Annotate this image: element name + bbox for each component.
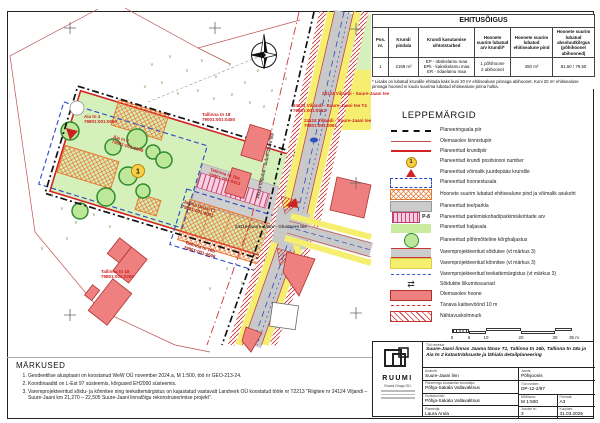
tree-swatch xyxy=(404,233,419,248)
bus-stop-marker xyxy=(310,138,318,143)
format-cell: Formaat:A3 xyxy=(557,395,596,406)
svg-text:∨: ∨ xyxy=(65,236,69,242)
table-row: 1 2169 m² EP - üksikelamu maa EPk - kaks… xyxy=(373,57,595,76)
legend-panel: LEPPEMÄRGID Planeeringuala piir Olemasol… xyxy=(388,110,592,322)
note-item: Varemprojekteeritud sõidu- ja kõnnitee n… xyxy=(28,389,368,403)
scale-segment xyxy=(521,331,555,334)
svg-text:∨: ∨ xyxy=(240,280,244,286)
project-title-cell: Töö nimetus: Suure-Jaani linnas Jaama tä… xyxy=(423,342,595,368)
legend-item: Planeeringuala piir xyxy=(388,126,592,136)
legend-item: Varemprojekteeritud teekattemärgistus (v… xyxy=(388,269,592,279)
svg-text:∨: ∨ xyxy=(40,246,44,252)
ruumi-logo-icon xyxy=(383,346,413,374)
svg-text:∨: ∨ xyxy=(243,80,247,86)
road-name-label: 24116 Suure-Jaani - Olustvere tee xyxy=(235,224,307,229)
company-name: Ruumi Grupp OÜ xyxy=(384,384,410,388)
parcel-label: Tallinna tn 18 79801:001:0280 xyxy=(101,269,134,279)
sheet-date-cell: Joonise nr:3 Kuupäev:31.03.2025 xyxy=(519,407,595,418)
planning-boundary-swatch xyxy=(391,130,431,132)
scale-segment xyxy=(555,328,572,331)
legend-item: ⇄Sõidukite liikumissuunad xyxy=(388,280,592,290)
position-number-swatch: 1 xyxy=(406,157,417,168)
col-header: Hoonete suurim lubatud arv krundil* xyxy=(475,28,511,57)
company-logo: RUUMI Ruumi Grupp OÜ xyxy=(373,342,423,416)
svg-text:∨: ∨ xyxy=(160,80,164,86)
date-cell: Kuupäev:31.03.2025 xyxy=(557,407,596,418)
col-header: Pos. nr. xyxy=(373,28,389,57)
prev-sidewalk-swatch xyxy=(390,258,432,269)
notes-panel: MÄRKUSED Geodeetilise alusplaani on koos… xyxy=(16,361,368,403)
road-parking-swatch xyxy=(390,201,432,212)
parcel-label: Tallinna tn 18 79001:001:0450 xyxy=(202,112,235,122)
hoonestusala-swatch xyxy=(390,178,432,188)
svg-text:∨: ∨ xyxy=(284,76,288,82)
legend-item: Planeeritud põhimõtteline kõrghaljastus xyxy=(388,233,592,248)
cell-height: 81,50 / 79,50 xyxy=(553,57,595,76)
cell-pos: 1 xyxy=(373,57,389,76)
legend-item: Nähtavuskolmnurk xyxy=(388,311,592,322)
svg-text:∨: ∨ xyxy=(225,266,229,272)
green-area-swatch xyxy=(391,224,431,233)
access-swatch xyxy=(406,169,416,177)
svg-text:∨: ∨ xyxy=(74,220,78,226)
svg-text:∨: ∨ xyxy=(228,62,232,68)
prev-marking-swatch xyxy=(391,274,431,275)
logo-text: RUUMI xyxy=(382,375,412,382)
building-rights-table: EHITUSÕIGUS Pos. nr. Krundi pindala Krun… xyxy=(372,14,595,77)
legend-item: Varemprojekteeritud sõidutee (vt märkus … xyxy=(388,248,592,258)
cell-area: 2169 m² xyxy=(389,57,419,76)
legend-item: Tänava kaitsevöönd 10 m xyxy=(388,301,592,311)
svg-text:∨: ∨ xyxy=(50,192,54,198)
svg-text:∨: ∨ xyxy=(256,68,260,74)
plot-boundary-swatch xyxy=(391,150,431,152)
company-info-line xyxy=(381,394,415,396)
legend-item: Planeeritud võimalik juurdepääs krundile xyxy=(388,168,592,178)
scale-segment xyxy=(452,329,469,333)
legend-item: P-8Planeeritud parkimiskohad/parkimiskoh… xyxy=(388,212,592,223)
visibility-triangle-swatch xyxy=(390,311,432,322)
legend-item: Planeeritud hoonestusala xyxy=(388,178,592,188)
svg-text:∨: ∨ xyxy=(108,224,112,230)
legend-item: Planeeritud krundipiir xyxy=(388,146,592,156)
legend-item: Olemasolev hoone xyxy=(388,290,592,301)
notes-separator xyxy=(7,357,372,358)
svg-text:∨: ∨ xyxy=(196,88,200,94)
existing-building-swatch xyxy=(390,290,432,301)
col-header: Hoonete suurim lubatud absoluutkõrgus (p… xyxy=(553,28,595,57)
scale-bar: 0 5 10 20 30 35 m xyxy=(452,327,584,342)
cell-footprint: 450 m² xyxy=(511,57,553,76)
building-rights-panel: EHITUSÕIGUS Pos. nr. Krundi pindala Krun… xyxy=(372,14,594,89)
legend-title: LEPPEMÄRGID xyxy=(402,110,592,121)
title-block: RUUMI Ruumi Grupp OÜ Töö nimetus: Suure-… xyxy=(372,341,594,417)
road-parcel-label: 24124 Viljandi - Suure-Jaani tee 79801:0… xyxy=(304,118,371,128)
svg-text:∨: ∨ xyxy=(150,62,154,68)
svg-text:∨: ∨ xyxy=(230,92,234,98)
legend-item: Planeeritud haljasala xyxy=(388,223,592,233)
scale-segment xyxy=(486,328,521,331)
svg-text:∨: ∨ xyxy=(248,100,252,106)
svg-text:∨: ∨ xyxy=(176,91,180,97)
legend-item: Hoonete suurim lubatud ehitisealune pind… xyxy=(388,188,592,201)
notes-list: Geodeetilise alusplaani on koostanud WeW… xyxy=(16,373,368,402)
legend-item: Olemasolev kinnistupiir xyxy=(388,136,592,146)
existing-boundary-swatch xyxy=(391,141,431,142)
company-info-line xyxy=(381,397,415,399)
svg-text:∨: ∨ xyxy=(200,58,204,64)
svg-text:∨: ∨ xyxy=(185,68,189,74)
location-cell: Asukoht:Suure-Jaani linn xyxy=(423,368,518,381)
table-title: EHITUSÕIGUS xyxy=(373,15,595,28)
north-arrow-icon xyxy=(251,34,277,69)
svg-text:∨: ∨ xyxy=(168,54,172,60)
prev-road-swatch xyxy=(391,248,431,258)
scale-cell: Mõõtkava:M 1:500 xyxy=(519,395,557,406)
parking-swatch xyxy=(392,212,420,223)
work-number-cell: Töö number:DP-12-2/97 xyxy=(519,381,595,394)
svg-text:∨: ∨ xyxy=(208,286,212,292)
drawing-cell: Joonis:Põhijoonis xyxy=(519,368,595,381)
protection-zone-swatch xyxy=(391,305,431,306)
project-title: Suure-Jaani linnas Jaama tänav T1, Talli… xyxy=(426,347,592,359)
survey-marker xyxy=(70,101,84,115)
note-item: Geodeetilise alusplaani on koostanud WeW… xyxy=(28,373,368,380)
notes-title: MÄRKUSED xyxy=(16,361,368,370)
svg-text:∨: ∨ xyxy=(125,216,129,222)
road-parcel-label: 24124 Viljandi - Suure-Jaani tee xyxy=(322,91,389,96)
table-header-row: Pos. nr. Krundi pindala Krundi kasutamis… xyxy=(373,28,595,57)
svg-text:∨: ∨ xyxy=(262,104,266,110)
sheet-number-cell: Joonise nr:3 xyxy=(519,407,557,418)
svg-text:∨: ∨ xyxy=(270,88,274,94)
table-footnote: * Lisaks on lubatud krundile ehitada kak… xyxy=(372,79,594,90)
company-info-line xyxy=(381,390,415,392)
plan-sheet: 1 ∨∨∨∨∨∨∨∨∨∨∨∨∨∨∨∨∨∨∨∨∨∨∨∨∨∨∨∨∨ Aia tn 4… xyxy=(0,0,600,423)
svg-text:∨: ∨ xyxy=(212,96,216,102)
note-item: Koordinaadid on L-Est 97 süsteemis, kõrg… xyxy=(28,381,368,388)
planner-cell: Planeerija:Laura Arula xyxy=(423,406,518,418)
cell-count: 1 põhihoone 2 abihoonet xyxy=(475,57,511,76)
parcel-label: Aia tn 4 79801:001:0050 xyxy=(84,114,117,124)
scale-format-cell: Mõõtkava:M 1:500 Formaat:A3 xyxy=(519,395,595,407)
col-header: Krundi pindala xyxy=(389,28,419,57)
road-parcel-label: 24124 Viljandi - Suure-Jaani tee T4 7980… xyxy=(293,103,367,113)
footprint-swatch xyxy=(390,189,432,200)
title-block-grid: Asukoht:Suure-Jaani linn Planeeringu koo… xyxy=(423,368,595,418)
svg-text:∨: ∨ xyxy=(214,74,218,80)
parking-count-glyph: P-8 xyxy=(422,214,430,220)
plot-position-number: 1 xyxy=(132,165,145,178)
legend-item: 1Planeeritud krundi positsiooni number xyxy=(388,157,592,168)
legend-item: Planeeritud tee/parkla xyxy=(388,201,592,212)
legend-item: Varemprojekteeritud kõnnitee (vt märkus … xyxy=(388,258,592,269)
svg-text:∨: ∨ xyxy=(92,212,96,218)
organizer-cell: Planeeringu koostamise korraldaja:Põhja-… xyxy=(423,381,518,394)
col-header: Hoonete suurim lubatud ehitisealune pind xyxy=(511,28,553,57)
scale-segment xyxy=(469,331,486,334)
svg-text:∨: ∨ xyxy=(60,206,64,212)
col-header: Krundi kasutamise sihtotstarbed xyxy=(419,28,475,57)
planned-outbuilding xyxy=(269,302,298,329)
direction-arrows-glyph: ⇄ xyxy=(407,280,415,289)
interested-cell: Huvitatud isik:Põhja-Sakala Vallavalitsu… xyxy=(423,394,518,407)
svg-text:1: 1 xyxy=(136,169,140,176)
cell-purpose: EP - üksikelamu maa EPk - kaksikelamu ma… xyxy=(419,57,475,76)
svg-text:∨: ∨ xyxy=(143,84,147,90)
